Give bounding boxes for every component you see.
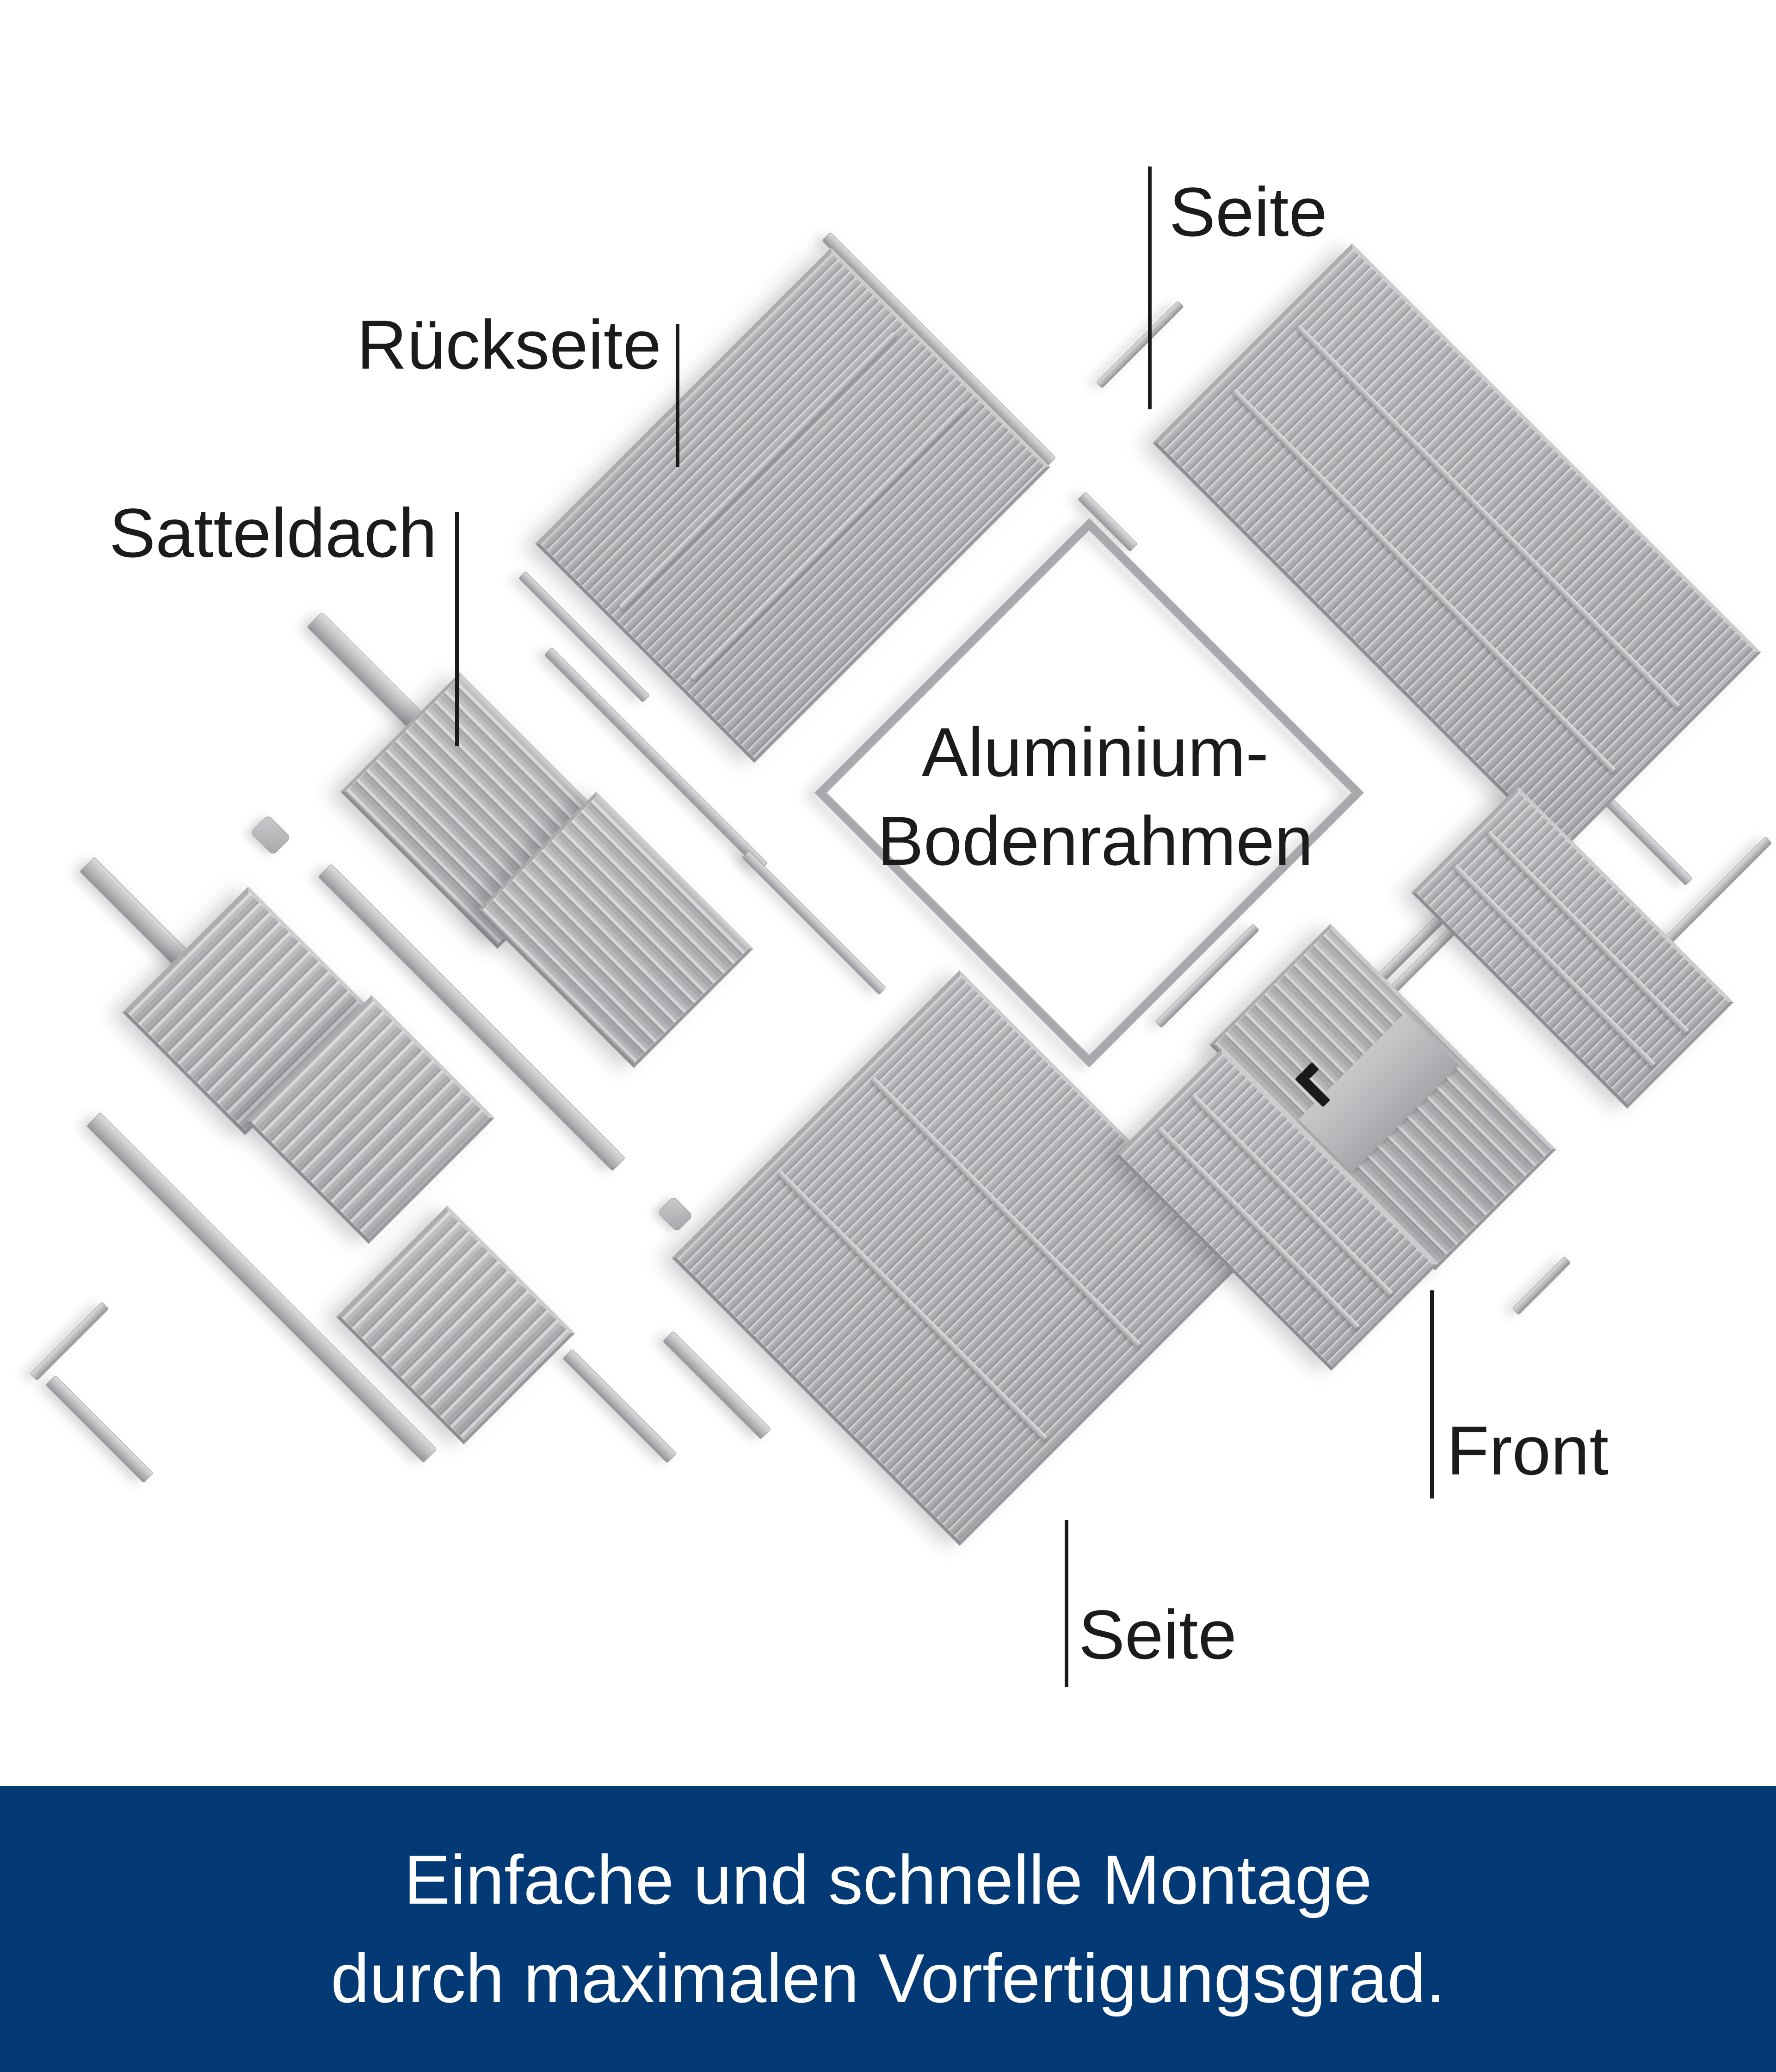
banner-line-2: durch maximalen Vorfertigungsgrad. [331,1929,1445,2028]
side-wall-panel-bottom [672,970,1248,1546]
banner: Einfache und schnelle Montage durch maxi… [0,1786,1776,2072]
shed-parts-diagram: SeiteRückseiteSatteldachAluminium-Bodenr… [0,0,1776,2072]
tick-satteldach [455,512,459,746]
tick-seite-top [1148,166,1152,409]
label-front: Front [1447,1406,1609,1495]
label-bodenrahmen-line: Bodenrahmen [877,796,1313,885]
label-seite-bottom: Seite [1079,1590,1237,1679]
rail-bottom-a [562,1349,677,1463]
banner-line-1: Einfache und schnelle Montage [404,1831,1372,1929]
door-stub-rail [1512,1256,1571,1315]
back-wall-panel-separator [690,402,968,680]
rail-bottom-left [45,1375,153,1483]
label-rueckseite: Rückseite [357,300,661,389]
side-wall-panel-top-separator [1296,325,1680,709]
rail-side-left [1096,301,1184,388]
label-seite-top: Seite [1169,167,1327,256]
corner-cap-2 [657,1196,693,1232]
rail-stub-left [30,1301,109,1381]
rail-bottom-b [663,1331,771,1440]
rail-frame-side [742,851,887,995]
label-bodenrahmen-line: Aluminium- [877,708,1313,796]
corner-cap-1 [250,814,291,855]
tick-seite-bottom [1065,1520,1068,1687]
label-bodenrahmen: Aluminium-Bodenrahmen [877,708,1313,885]
tick-front [1430,1290,1434,1498]
tick-rueckseite [676,324,679,467]
label-satteldach: Satteldach [109,488,437,577]
door-handle-icon [1295,1072,1330,1107]
